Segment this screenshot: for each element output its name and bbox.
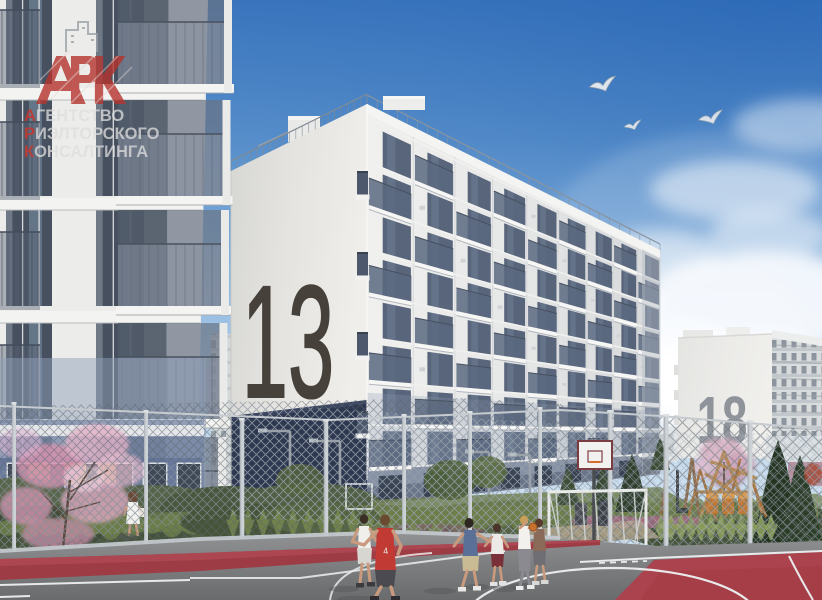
svg-text:АГЕНТСТВО: АГЕНТСТВО (24, 107, 124, 125)
svg-text:4: 4 (383, 546, 389, 556)
svg-text:КОНСАЛТИНГА: КОНСАЛТИНГА (24, 143, 148, 161)
svg-text:РИЭЛТОРСКОГО: РИЭЛТОРСКОГО (24, 125, 160, 143)
